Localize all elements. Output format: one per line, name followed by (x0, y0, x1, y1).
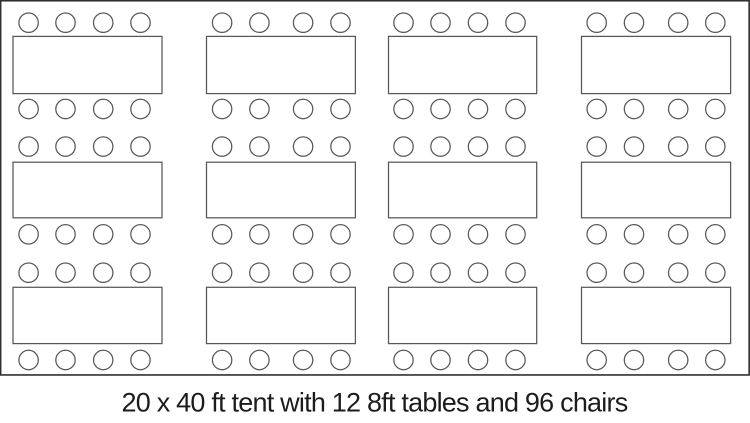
svg-text:20 x 40 ft tent with 12 8ft ta: 20 x 40 ft tent with 12 8ft tables and 9… (122, 388, 628, 418)
